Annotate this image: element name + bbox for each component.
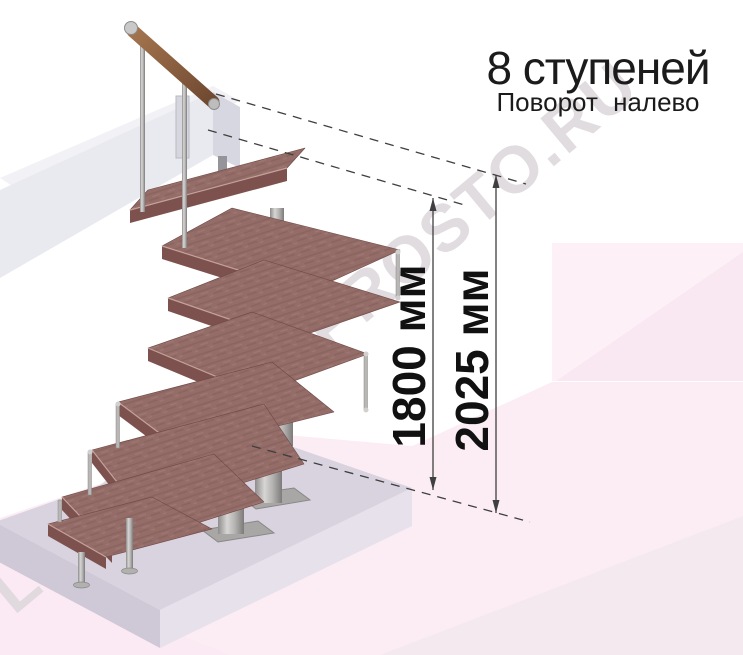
handrail-collar <box>209 99 220 110</box>
title-block: 8 ступеней Поворот налево <box>486 42 709 117</box>
dimension-label-2025: 2025 мм <box>446 268 498 451</box>
title-turn-direction: Поворот налево <box>496 87 699 117</box>
staircase-diagram: LESTNITSA-PROSTO.RU <box>0 0 743 655</box>
floor-post <box>78 552 85 584</box>
staircase-illustration: LESTNITSA-PROSTO.RU <box>0 0 743 655</box>
handrail-end-cap <box>125 22 138 35</box>
baluster <box>140 36 145 212</box>
floor-post <box>126 518 133 570</box>
dimension-label-1800: 1800 мм <box>383 264 435 447</box>
baluster <box>182 78 187 248</box>
